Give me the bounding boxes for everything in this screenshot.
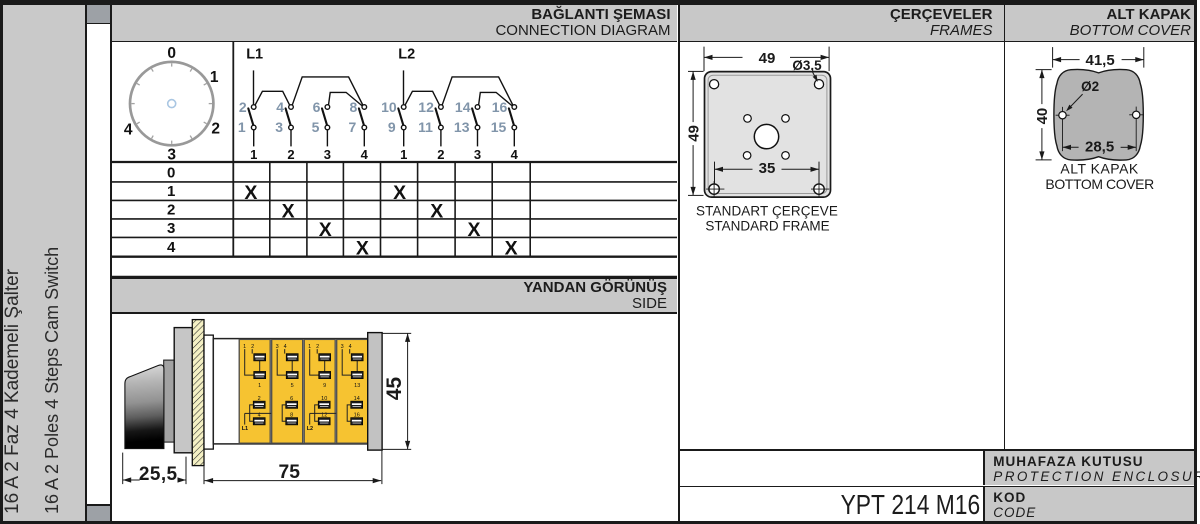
svg-text:49: 49 xyxy=(758,50,775,67)
svg-text:25,5: 25,5 xyxy=(139,465,178,486)
svg-text:1: 1 xyxy=(258,383,261,389)
svg-text:Ø3,5: Ø3,5 xyxy=(792,58,822,73)
svg-text:6: 6 xyxy=(313,99,321,115)
svg-text:4: 4 xyxy=(277,99,285,115)
svg-text:4: 4 xyxy=(167,239,176,256)
svg-text:45: 45 xyxy=(383,377,406,401)
svg-text:2: 2 xyxy=(239,99,247,115)
svg-text:40: 40 xyxy=(1034,108,1051,125)
svg-text:10: 10 xyxy=(381,99,397,115)
svg-text:3: 3 xyxy=(324,147,331,162)
svg-text:L2: L2 xyxy=(307,427,313,433)
svg-text:12: 12 xyxy=(419,99,435,115)
svg-text:14: 14 xyxy=(455,99,471,115)
svg-text:13: 13 xyxy=(454,120,470,136)
svg-text:9: 9 xyxy=(323,383,326,389)
svg-text:L2: L2 xyxy=(399,47,416,63)
svg-text:4: 4 xyxy=(361,147,369,162)
svg-text:3: 3 xyxy=(276,120,284,136)
svg-text:X: X xyxy=(245,182,258,204)
svg-text:1: 1 xyxy=(250,147,257,162)
svg-text:X: X xyxy=(505,238,518,260)
svg-text:1: 1 xyxy=(167,184,175,201)
svg-text:16: 16 xyxy=(492,99,508,115)
svg-text:75: 75 xyxy=(279,462,301,483)
svg-text:11: 11 xyxy=(418,120,433,136)
svg-text:ALT KAPAK: ALT KAPAK xyxy=(1061,161,1140,177)
svg-text:X: X xyxy=(393,182,406,204)
svg-text:3: 3 xyxy=(474,147,481,162)
svg-text:28,5: 28,5 xyxy=(1085,139,1114,156)
svg-text:49: 49 xyxy=(685,125,702,142)
svg-text:STANDART ÇERÇEVE: STANDART ÇERÇEVE xyxy=(696,204,838,219)
svg-text:STANDARD FRAME: STANDARD FRAME xyxy=(705,219,829,234)
svg-text:35: 35 xyxy=(758,161,775,178)
svg-text:Ø2: Ø2 xyxy=(1081,79,1099,94)
svg-text:4: 4 xyxy=(124,122,133,139)
svg-text:0: 0 xyxy=(167,165,175,182)
svg-text:L1: L1 xyxy=(242,427,248,433)
svg-text:X: X xyxy=(468,219,481,241)
svg-text:3: 3 xyxy=(167,221,175,238)
svg-text:1: 1 xyxy=(400,147,407,162)
svg-text:2: 2 xyxy=(438,147,445,162)
svg-text:7: 7 xyxy=(349,120,357,136)
svg-text:1: 1 xyxy=(210,69,219,86)
svg-text:5: 5 xyxy=(312,120,320,136)
svg-text:0: 0 xyxy=(168,45,177,62)
svg-text:1: 1 xyxy=(238,120,246,136)
svg-text:5: 5 xyxy=(291,383,294,389)
svg-text:8: 8 xyxy=(350,99,358,115)
svg-text:BOTTOM COVER: BOTTOM COVER xyxy=(1046,176,1155,192)
svg-text:2: 2 xyxy=(288,147,295,162)
svg-text:2: 2 xyxy=(212,121,221,138)
svg-text:L1: L1 xyxy=(246,47,263,63)
svg-text:2: 2 xyxy=(167,202,175,219)
svg-text:4: 4 xyxy=(511,147,519,162)
svg-text:41,5: 41,5 xyxy=(1086,52,1115,69)
svg-text:15: 15 xyxy=(491,120,507,136)
svg-text:X: X xyxy=(282,201,295,223)
svg-text:X: X xyxy=(356,238,369,260)
svg-text:X: X xyxy=(319,219,332,241)
svg-text:X: X xyxy=(431,201,444,223)
svg-text:9: 9 xyxy=(388,120,396,136)
svg-text:13: 13 xyxy=(354,383,360,389)
